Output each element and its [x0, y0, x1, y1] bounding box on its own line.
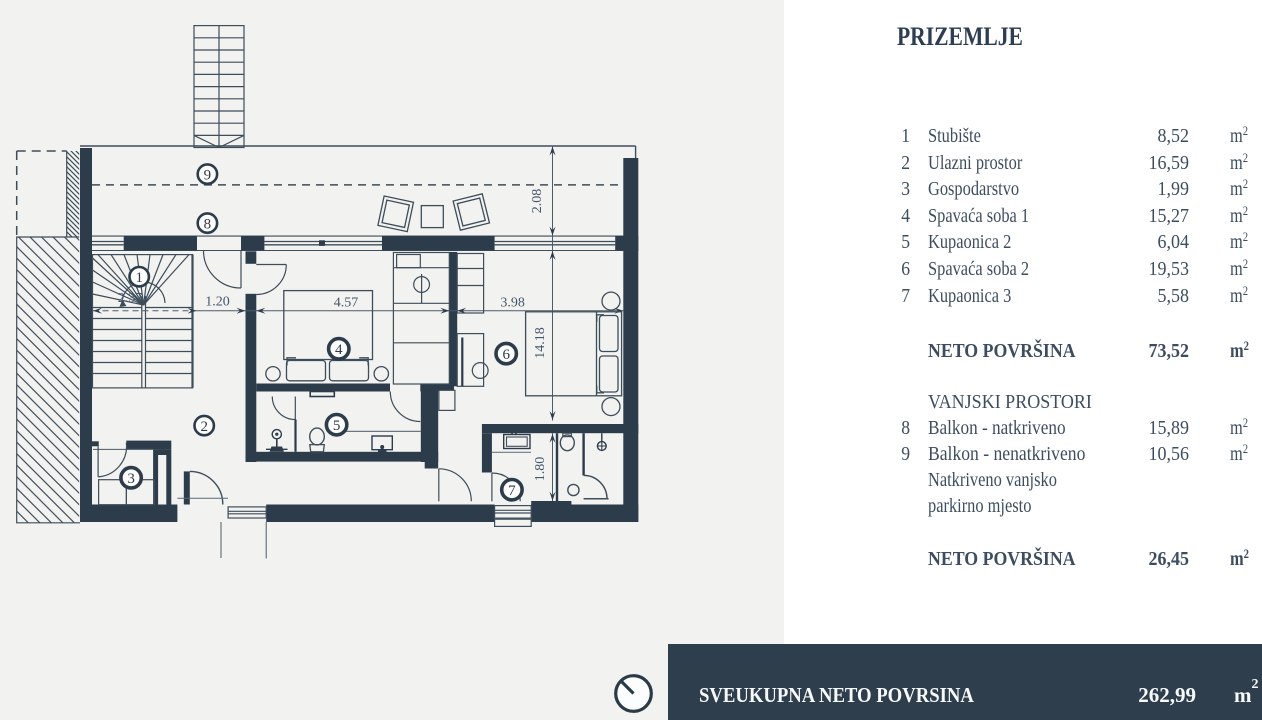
svg-text:9: 9 [204, 167, 212, 183]
svg-text:8: 8 [204, 216, 212, 232]
svg-text:6: 6 [502, 347, 510, 363]
svg-text:2.08: 2.08 [530, 189, 545, 214]
svg-text:2: 2 [200, 419, 208, 435]
svg-text:4.57: 4.57 [334, 296, 359, 311]
svg-text:5: 5 [333, 418, 341, 434]
svg-text:3.98: 3.98 [500, 296, 525, 311]
svg-text:2.37: 2.37 [118, 291, 143, 306]
svg-text:1: 1 [135, 270, 143, 286]
svg-text:1.80: 1.80 [533, 457, 548, 482]
svg-text:1.20: 1.20 [205, 295, 230, 310]
svg-text:7: 7 [508, 483, 516, 499]
svg-text:3: 3 [127, 471, 135, 487]
svg-text:4: 4 [335, 342, 343, 358]
svg-text:14.18: 14.18 [533, 327, 548, 359]
